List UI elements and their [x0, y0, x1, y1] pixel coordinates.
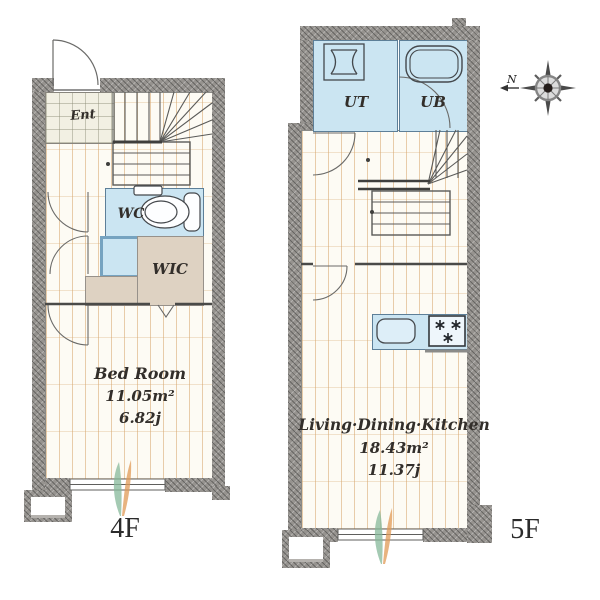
ldk-label-5f: Living·Dining·Kitchen — [298, 417, 490, 433]
ldk-window-5f — [338, 529, 423, 540]
wic-corridor-4f — [85, 276, 141, 306]
floor-label-4f: 4F — [85, 513, 165, 545]
bedroom-area-jo-4f: 6.82j — [70, 411, 210, 427]
wall-segment — [212, 486, 230, 500]
wall-segment — [423, 528, 467, 542]
ldk-area-m2-5f: 18.43m² — [300, 441, 488, 457]
wall-segment — [32, 92, 45, 492]
ub-room-5f — [399, 40, 469, 132]
wall-segment — [467, 505, 492, 543]
compass-icon: N — [500, 60, 576, 116]
washer-pan-4f — [100, 236, 140, 278]
wall-segment — [300, 26, 480, 40]
exterior-shaft-box-inner-5f — [289, 537, 323, 562]
wall-segment — [165, 478, 212, 492]
exterior-shaft-box-inner-4f — [31, 497, 65, 518]
wic-label-4f: WIC — [139, 262, 201, 278]
floor-label-5f: 5F — [490, 514, 560, 546]
wall-segment — [212, 92, 225, 488]
wall-segment — [452, 18, 466, 26]
bedroom-area-m2-4f: 11.05m² — [70, 389, 210, 405]
kitchen-counter-5f — [372, 314, 469, 350]
bedroom-label-4f: Bed Room — [70, 366, 210, 383]
ut-room-5f — [313, 40, 398, 132]
wall-segment — [300, 40, 313, 123]
entrance-door-4f — [53, 40, 100, 90]
ut-label-5f: UT — [330, 95, 382, 111]
wall-segment — [32, 78, 54, 92]
ub-label-5f: UB — [407, 95, 459, 111]
floor-plan-canvas: N Ent WC WIC Bed Room 11.05m² 6.82j 4F U… — [0, 0, 600, 600]
bedroom-window-4f — [70, 479, 165, 490]
wall-segment — [467, 40, 480, 505]
compass-north-label: N — [506, 73, 517, 86]
wc-label-4f: WC — [108, 207, 154, 222]
wall-segment — [100, 78, 225, 92]
ldk-area-jo-5f: 11.37j — [300, 463, 488, 479]
